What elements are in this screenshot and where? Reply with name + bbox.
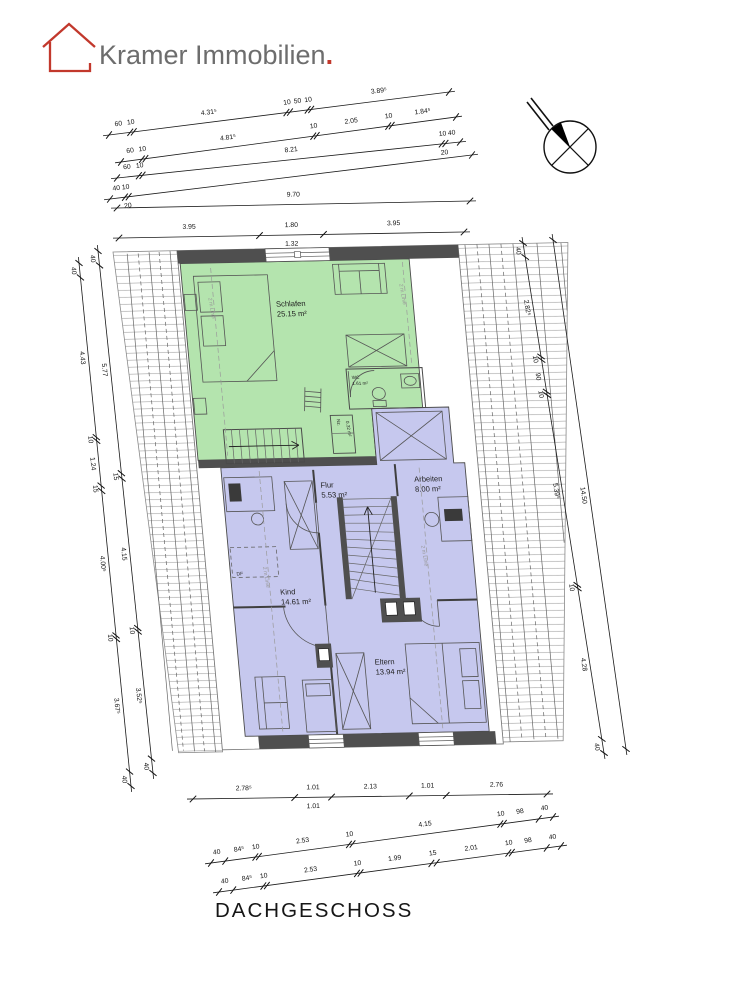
label-schlafen-area: 25.15 m² <box>277 309 308 319</box>
dim-label: 3.95 <box>387 220 401 227</box>
dim-label: 10 <box>138 146 147 154</box>
dim-label: 10 <box>283 99 292 107</box>
dim-label: 90 <box>534 373 542 382</box>
dim-sublabel: 1.01 <box>307 803 321 810</box>
dim-label: 40 <box>88 255 96 263</box>
dim-label: 4.00⁵ <box>98 555 107 572</box>
dim-label: 1.99 <box>388 854 402 863</box>
dim-label: 3.67⁵ <box>112 698 121 715</box>
dim-label: 3.89⁵ <box>371 87 388 96</box>
logo-text: Kramer Immobilien. <box>99 40 333 70</box>
dim-label: 4.28 <box>579 658 588 672</box>
label-eltern-area: 13.94 m² <box>375 667 406 677</box>
dim-label: 3.95 <box>182 224 196 231</box>
dim-label: 50 <box>293 98 302 106</box>
dim-label: 2.76 <box>490 782 504 789</box>
dim-label: 2.01 <box>464 844 478 853</box>
dim-label: 40 <box>448 129 456 137</box>
dim-label: 98 <box>516 808 525 816</box>
dim-label: 40 <box>548 834 557 842</box>
dim-label: 1.84⁵ <box>414 107 431 116</box>
dim-label: 98 <box>524 837 533 845</box>
dim-chain-top-4: 401020 <box>104 151 478 210</box>
dim-label: 4.15 <box>119 547 127 561</box>
dim-label: 10 <box>531 355 539 364</box>
dim-label: 2.53 <box>296 837 310 846</box>
dim-label: 10 <box>127 119 136 127</box>
dim-chain-top-5: 9.70 <box>111 191 476 211</box>
window-top <box>265 247 330 261</box>
label-schlafen: Schlafen <box>276 299 306 309</box>
building: Schlafen 25.15 m² WC 1.61 m² Nz. 0.32 m²… <box>113 242 614 753</box>
dim-chain-top-2: 60104.81⁵102.05101.84⁵ <box>115 107 462 165</box>
dim-label: 14.50 <box>578 487 587 505</box>
dim-label: 15 <box>111 472 119 480</box>
label-arbeiten: Arbeiten <box>414 474 443 484</box>
dim-label: 60 <box>114 120 123 128</box>
dim-label: 10 <box>304 96 313 104</box>
dim-label: 10 <box>128 626 136 634</box>
dim-label: 1.01 <box>421 783 435 790</box>
dim-label: 40 <box>221 878 230 886</box>
page-title: DACHGESCHOSS <box>215 899 413 922</box>
dim-chain-top-6: 3.951.801.323.95 <box>113 220 470 248</box>
label-kind: Kind <box>280 587 296 596</box>
dim-chain-bottom-1: 2.78⁵1.011.012.131.012.76 <box>187 782 553 811</box>
label-df: DF <box>236 571 243 577</box>
dim-label: 40 <box>514 247 522 256</box>
label-wc: WC <box>352 375 361 380</box>
floorplan-page: Kramer Immobilien. <box>0 0 746 1000</box>
label-eltern: Eltern <box>374 657 395 666</box>
dim-sublabel: 20 <box>440 149 448 157</box>
dim-label: 10 <box>121 184 130 192</box>
floorplan-drawing: Kramer Immobilien. <box>0 0 746 1000</box>
dim-label: 84⁵ <box>233 845 244 853</box>
dim-label: 60 <box>126 147 135 155</box>
dim-label: 10 <box>353 860 362 868</box>
dim-chain-top-1: 60104.31⁵1050103.89⁵ <box>103 87 455 139</box>
dim-chain-bottom-2: 4084⁵102.53104.15109840 <box>205 805 559 867</box>
dim-label: 3.52⁵ <box>134 687 143 704</box>
dim-label: 10 <box>252 843 261 851</box>
dim-label: 1.24 <box>88 457 96 471</box>
dim-label: 10 <box>505 839 514 847</box>
logo: Kramer Immobilien. <box>43 24 333 71</box>
dim-label: 40 <box>69 267 77 275</box>
dim-label: 10 <box>536 390 544 399</box>
dim-label: 2.13 <box>364 783 378 790</box>
dim-label: 40 <box>112 185 121 193</box>
dim-label: 9.70 <box>287 191 301 198</box>
dim-label: 10 <box>136 162 144 170</box>
dim-sublabel: 1.32 <box>285 241 299 248</box>
dim-label: 40 <box>213 849 222 857</box>
dim-label: 4.43 <box>78 351 86 365</box>
window-bottom-left <box>308 734 344 748</box>
dim-label: 4.81⁵ <box>220 133 237 142</box>
dim-label: 40 <box>592 743 600 752</box>
dim-label: 84⁵ <box>241 874 252 882</box>
label-wc-area: 1.61 m² <box>352 381 368 386</box>
dim-chain-bottom-3: 4084⁵102.53101.99152.01109840 <box>213 834 567 896</box>
dim-label: 10 <box>106 634 114 642</box>
dim-label: 2.53 <box>304 866 318 875</box>
dim-label: 15 <box>91 485 99 493</box>
dim-label: 40 <box>540 805 549 813</box>
dim-label: 10 <box>497 810 506 818</box>
dim-label: 4.15 <box>418 820 432 829</box>
dim-label: 10 <box>86 436 94 444</box>
house-icon <box>43 24 95 71</box>
dim-label: 10 <box>345 831 354 839</box>
north-arrow-icon <box>527 98 596 173</box>
dim-label: 1.01 <box>306 784 320 791</box>
label-flur: Flur <box>320 480 334 489</box>
dim-label: 40 <box>120 775 128 783</box>
dim-label: 10 <box>310 123 319 131</box>
label-flur-area: 5.53 m² <box>321 490 348 500</box>
dim-label: 2.05 <box>344 117 358 126</box>
dim-label: 2.78⁵ <box>236 785 252 792</box>
dim-label: 10 <box>438 130 446 138</box>
dim-label: 15 <box>429 850 438 858</box>
dim-label: 10 <box>260 872 269 880</box>
label-kind-area: 14.61 m² <box>281 597 312 607</box>
dim-label: 10 <box>384 112 393 120</box>
dim-label: 40 <box>142 762 150 770</box>
dim-label: 5.77 <box>100 363 108 377</box>
dim-label: 8.21 <box>284 146 298 154</box>
dim-chain-top-3: 60108.21102040 <box>111 129 466 181</box>
dim-label: 60 <box>123 164 131 172</box>
dim-label: 4.31⁵ <box>201 108 218 117</box>
dim-label: 1.80 <box>285 222 299 229</box>
dim-sublabel: 20 <box>124 202 133 210</box>
label-arbeiten-area: 8.00 m² <box>415 484 442 494</box>
dim-label: 10 <box>567 583 575 592</box>
window-bottom-right <box>418 732 454 746</box>
